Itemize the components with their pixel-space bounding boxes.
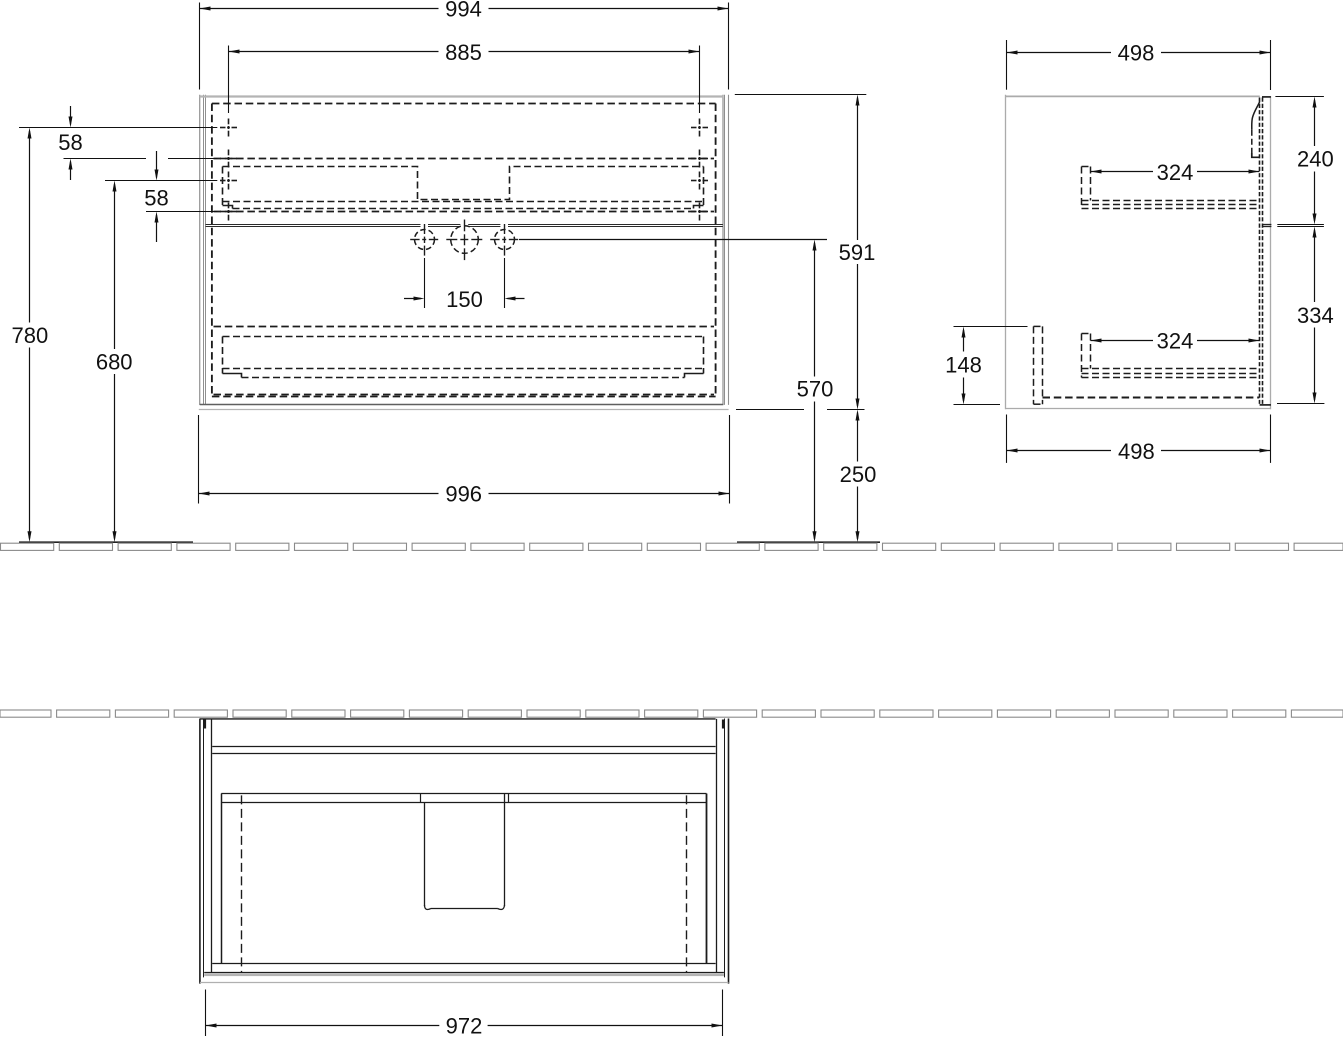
svg-text:780: 780: [12, 323, 49, 348]
svg-text:885: 885: [445, 40, 482, 65]
svg-text:150: 150: [446, 287, 483, 312]
svg-text:498: 498: [1118, 41, 1155, 66]
svg-text:148: 148: [945, 353, 982, 378]
svg-text:498: 498: [1118, 439, 1155, 464]
svg-text:994: 994: [445, 0, 482, 22]
svg-text:972: 972: [446, 1013, 483, 1038]
svg-text:591: 591: [839, 240, 876, 265]
svg-text:250: 250: [840, 462, 877, 487]
svg-text:58: 58: [58, 130, 82, 155]
svg-text:996: 996: [445, 482, 482, 507]
svg-text:324: 324: [1157, 160, 1194, 185]
svg-text:570: 570: [797, 377, 834, 402]
svg-text:334: 334: [1297, 303, 1334, 328]
svg-text:680: 680: [96, 350, 133, 375]
svg-text:58: 58: [144, 186, 168, 211]
svg-text:324: 324: [1157, 328, 1194, 353]
svg-text:240: 240: [1297, 147, 1334, 172]
